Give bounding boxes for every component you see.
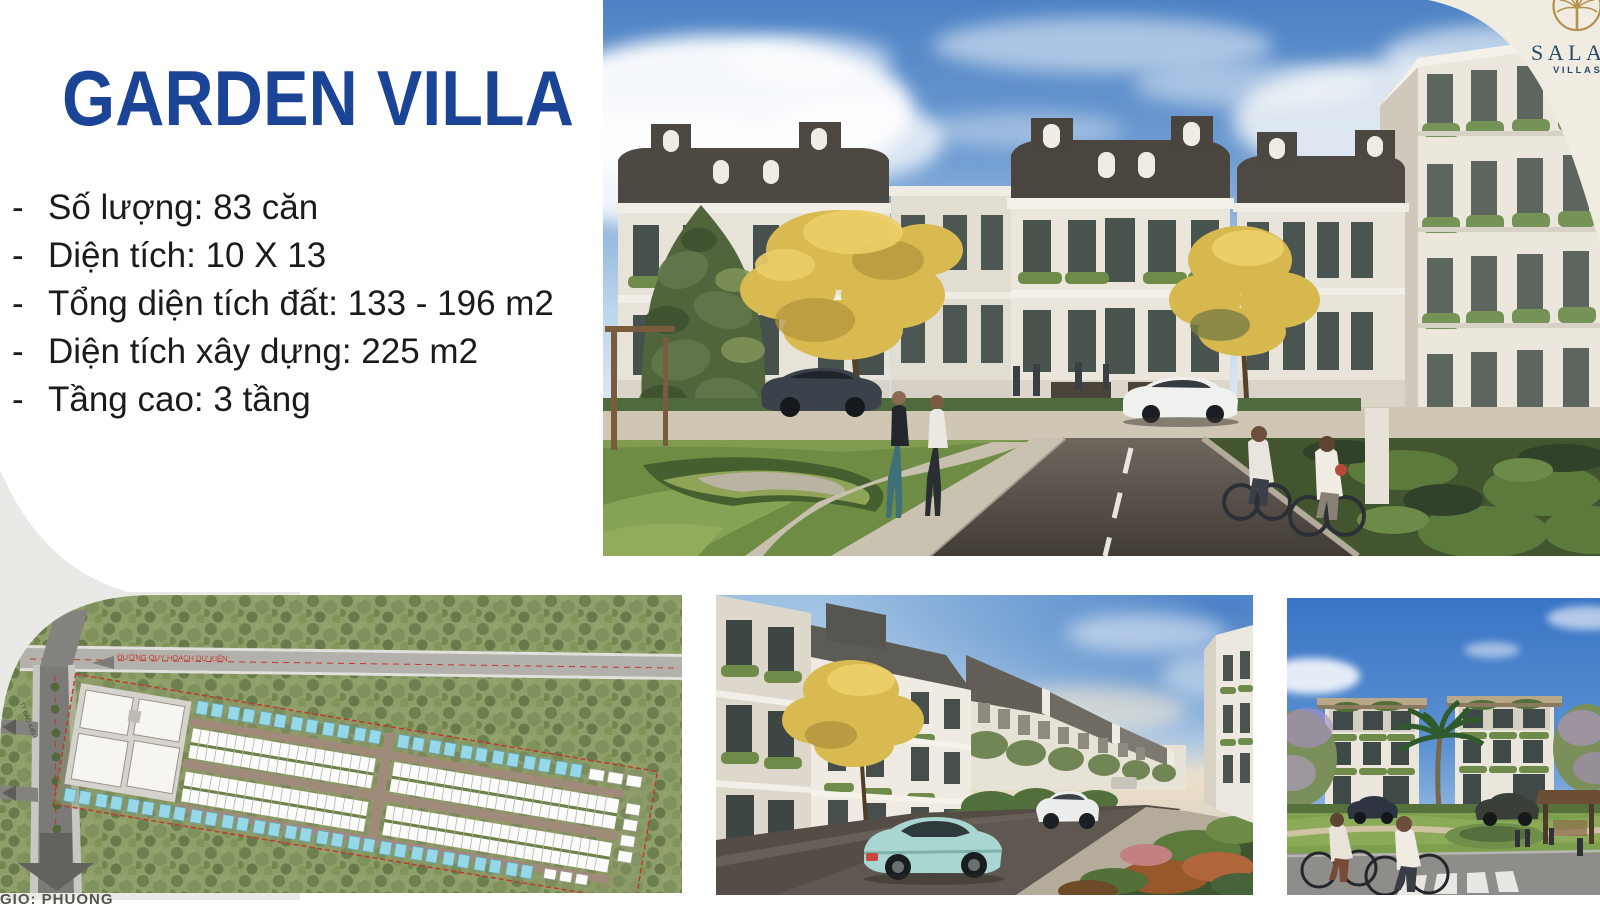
svg-text:SALAC: SALAC xyxy=(1531,40,1600,65)
svg-text:VILLAS: VILLAS xyxy=(1553,65,1600,76)
svg-text:ĐƯỜNG QUY HOẠCH DỰ KIẾN: ĐƯỜNG QUY HOẠCH DỰ KIẾN xyxy=(117,652,228,664)
